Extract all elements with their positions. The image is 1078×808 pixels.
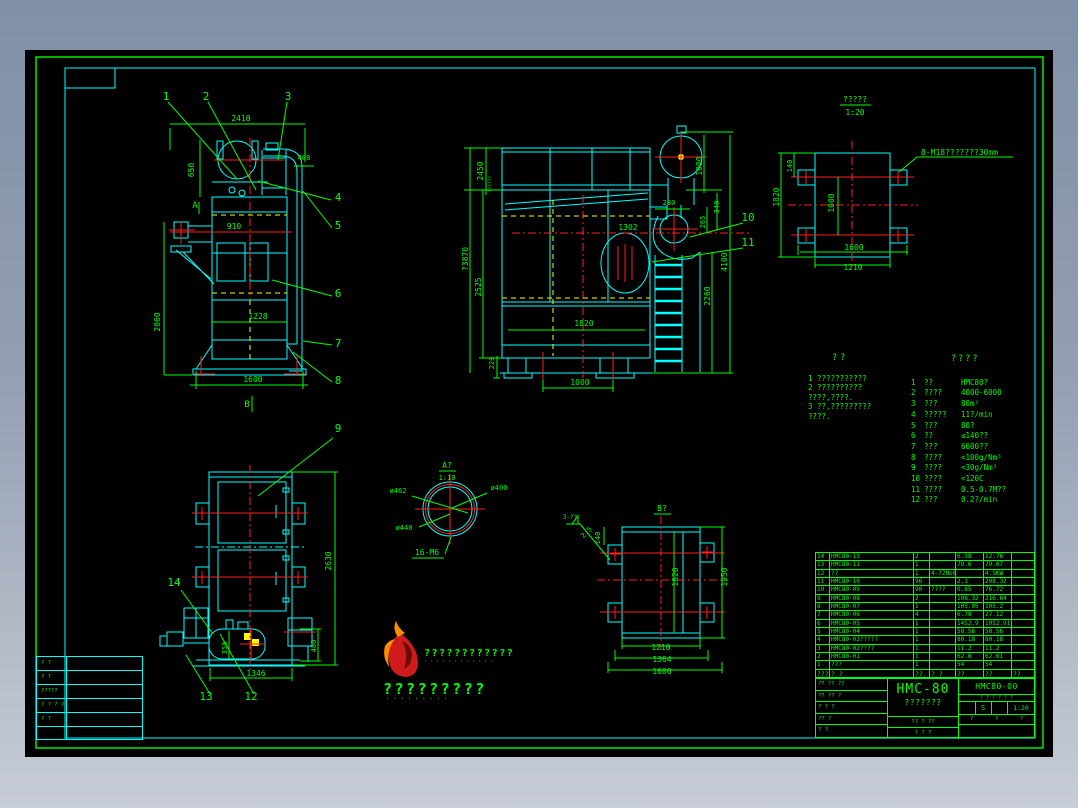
corner-row: ? ? (37, 713, 142, 727)
detail-a-scale: 1:10 (439, 474, 456, 482)
title-block-bottom-cell: ? (1020, 715, 1023, 724)
dim-vb-140: 140 (594, 532, 602, 545)
bom-cell: 6.38 (956, 553, 984, 560)
bom-cell: 108.32 (956, 595, 984, 602)
title-block-left-row: ? ? ? (816, 702, 887, 714)
dim-plan-1820: 1820 (772, 187, 781, 206)
bom-cell: 105.2 (984, 603, 1012, 610)
bom-cell (930, 553, 956, 560)
bom-cell: 12.76 (984, 553, 1012, 560)
bom-cell: 58.56 (956, 628, 984, 635)
bom-cell: 13 (816, 561, 830, 568)
dim-dia-440: ø440 (396, 524, 413, 532)
param-value: 6000?? (961, 442, 1061, 453)
dim-side-220: 220 (488, 357, 496, 370)
param-row: 5???80? (911, 421, 1061, 432)
callout-9: 9 (335, 422, 342, 435)
bom-cell: 1 (914, 570, 930, 577)
params-rows: 1??HMC80?2????4000-60003???80m²4?????11?… (911, 378, 1061, 506)
bom-cell: 54 (956, 661, 984, 668)
param-value: <100g/Nm³ (961, 453, 1061, 464)
param-value: 11?/min (961, 410, 1061, 421)
param-label: ??? (924, 399, 961, 410)
title-block-mid-row: ? ? ? (888, 728, 958, 739)
bom-row: 12??14-72No6C4.5KW (816, 570, 1034, 578)
dim-vb-1210: 1210 (651, 643, 670, 652)
param-no: 5 (911, 421, 924, 432)
param-label: ?? (924, 431, 961, 442)
callout-4: 4 (335, 191, 342, 204)
bom-row: 11HMC80-10962.1208.32 (816, 578, 1034, 586)
drawing-subtitle: ??????? (888, 698, 958, 707)
callout-12: 12 (244, 690, 257, 703)
param-no: 1 (911, 378, 924, 389)
side-elevation-view: 10 11 2450 ?????? ?3870 2525 220 1000 13… (461, 126, 755, 392)
bom-cell: 1 (914, 661, 930, 668)
corner-row: ? ? (37, 671, 142, 685)
view-b: B? 3-?? 2.5 140 1820 1950 1210 1364 1600 (563, 504, 729, 676)
dim-side-note: ?????? (488, 176, 494, 193)
bom-cell (930, 620, 956, 627)
param-label: ???? (924, 453, 961, 464)
plan-title: ????? (843, 95, 867, 104)
tank-indicator-2 (252, 639, 259, 646)
callout-3: 3 (285, 90, 292, 103)
bom-cell: 62.61 (984, 653, 1012, 660)
bom-cell (1012, 603, 1034, 610)
param-value: 80? (961, 421, 1061, 432)
bom-cell: HMC80-06 (830, 611, 914, 618)
bom-cell (930, 636, 956, 643)
bom-row: 13HMC80-11179.679.67 (816, 561, 1034, 569)
corner-row (37, 727, 142, 741)
note-line: ????. (808, 412, 916, 422)
dim-side-2260: 2260 (703, 286, 712, 305)
bom-cell: 1 (914, 561, 930, 568)
callout-11: 11 (741, 236, 754, 249)
dim-front-1228: 1228 (248, 312, 267, 321)
bom-cell: 54 (984, 661, 1012, 668)
param-value: <120C (961, 474, 1061, 485)
param-value: 80m² (961, 399, 1061, 410)
bom-cell: 6 (816, 620, 830, 627)
bom-row: 4HMC80-03?????180.1880.18 (816, 636, 1034, 644)
dim-front-2060: 2060 (153, 312, 162, 331)
corner-revision-block: ? ?? ??????? ? ? ?? ? (36, 656, 143, 740)
param-no: 4 (911, 410, 924, 421)
drawing-canvas[interactable]: 1 2 3 4 5 6 7 8 2410 650 408 910 2060 12… (25, 50, 1053, 757)
param-no: 8 (911, 453, 924, 464)
title-block-model-cell: HMC-80 ??????? (888, 679, 959, 717)
bom-cell (930, 561, 956, 568)
bom-cell: HMC80-07 (830, 603, 914, 610)
param-row: 1??HMC80? (911, 378, 1061, 389)
dim-dia-400: ø400 (491, 484, 508, 492)
bom-row: 9HMC80-082108.32216.64 (816, 595, 1034, 603)
bom-cell: 9 (816, 595, 830, 602)
bom-cell: ?? (830, 570, 914, 577)
bom-cell (1012, 570, 1034, 577)
title-block-left-row: ?? ? (816, 714, 887, 726)
drawing-scale: 1:20 (1008, 702, 1034, 714)
bom-cell: 14 (816, 553, 830, 560)
weld-note: 3-?? (563, 514, 578, 521)
params-title: ???? (911, 354, 1061, 365)
bom-cell: HMC80-03????? (830, 636, 914, 643)
bom-cell: 2.1 (956, 578, 984, 585)
bom-row: 6HMC80-0511452.91952.91 (816, 620, 1034, 628)
bom-row: 2HMC80-01162.662.61 (816, 653, 1034, 661)
bom-cell: 4.5KW (984, 570, 1012, 577)
dim-side-280: 280 (663, 199, 676, 207)
callout-6: 6 (335, 287, 342, 300)
bom-cell (1012, 628, 1034, 635)
logo-text-small: ???????????? (424, 648, 514, 659)
corner-row: ????? (37, 685, 142, 699)
bom-cell: HMC80-09 (830, 586, 914, 593)
bom-cell: 2 (816, 653, 830, 660)
bom-cell: ???? (930, 586, 956, 593)
param-row: 12???0.2?/min (911, 495, 1061, 506)
param-label: ?? (924, 378, 961, 389)
param-value: <30g/Nm³ (961, 463, 1061, 474)
bom-cell (1012, 620, 1034, 627)
bom-cell: 27.12 (984, 611, 1012, 618)
bom-cell: 80.18 (984, 636, 1012, 643)
param-label: ??? (924, 421, 961, 432)
note-line: 3 ??,????????? (808, 402, 916, 412)
note-line: 2 ?????????? (808, 383, 916, 393)
bom-row: 8HMC80-071105.05105.2 (816, 603, 1034, 611)
bom-cell: 216.64 (984, 595, 1012, 602)
dim-side-265: 265 (699, 216, 707, 229)
app-background: 1 2 3 4 5 6 7 8 2410 650 408 910 2060 12… (0, 0, 1078, 808)
dim-side-1000b: 1000 (570, 378, 589, 387)
bom-cell: 3 (816, 645, 830, 652)
bom-cell (930, 653, 956, 660)
param-row: 3???80m² (911, 399, 1061, 410)
corner-row: ? ? (37, 657, 142, 671)
title-block-marks: ? ? ? ? ? ? (959, 695, 1034, 702)
bom-cell: 62.6 (956, 653, 984, 660)
bom-cell: HMC80-01 (830, 653, 914, 660)
param-row: 2????4000-6000 (911, 388, 1061, 399)
model-number: HMC-80 (888, 681, 958, 698)
sheet-code: S (976, 702, 992, 714)
bom-cell: 1952.91 (984, 620, 1012, 627)
bom-cell (1012, 578, 1034, 585)
dim-side-1302: 1302 (618, 223, 637, 232)
bom-cell (930, 611, 956, 618)
drawing-number: HMC80-00 (959, 679, 1034, 695)
bom-cell (1012, 661, 1034, 668)
frame-corner-tab (65, 68, 115, 88)
callout-13: 13 (199, 690, 212, 703)
bom-cell (930, 578, 956, 585)
dim-vb-1364: 1364 (652, 655, 671, 664)
param-label: ???? (924, 388, 961, 399)
dim-plan-1210: 1210 (843, 263, 862, 272)
bom-cell: HMC80-02???? (830, 645, 914, 652)
dim-plan-140: 140 (786, 160, 794, 173)
param-label: ??? (924, 495, 961, 506)
dim-vb-1600: 1600 (652, 667, 671, 676)
param-no: 12 (911, 495, 924, 506)
bom-cell (1012, 553, 1034, 560)
dim-side-2525: 2525 (474, 277, 483, 296)
bom-cell: 1 (816, 661, 830, 668)
bom-cell: 105.05 (956, 603, 984, 610)
dim-plan-1000: 1000 (827, 193, 836, 212)
dim-side-1820: 1820 (574, 319, 593, 328)
param-row: 7???6000?? (911, 442, 1061, 453)
param-row: 11????0.5-0.7M?? (911, 485, 1061, 496)
bom-cell: 1452.9 (956, 620, 984, 627)
callout-8: 8 (335, 374, 342, 387)
dim-bolts-16m6: 16-M6 (415, 548, 439, 557)
dim-side-4100: 4100 (720, 252, 729, 271)
bom-cell: 1 (914, 653, 930, 660)
bom-cell (1012, 561, 1034, 568)
title-block-mid-row: ?? ? ?? (888, 717, 958, 728)
title-block: ?? ?? ???? ?? ?? ? ??? ?? ? HMC-80 ?????… (815, 678, 1035, 738)
bom-cell: HMC80-04 (830, 628, 914, 635)
param-row: 9????<30g/Nm³ (911, 463, 1061, 474)
callout-10: 10 (741, 211, 754, 224)
section-label-b: B (244, 400, 249, 410)
bom-table: 14HMC80-1326.3812.7613HMC80-11179.679.67… (815, 552, 1035, 678)
title-block-right: HMC80-00 ? ? ? ? ? ? S 1:20 ??? (959, 679, 1034, 737)
bom-cell (930, 645, 956, 652)
dim-side-2450: 2450 (476, 161, 485, 180)
bom-cell: 12 (816, 570, 830, 577)
dim-vb-1950: 1950 (720, 567, 729, 586)
bom-cell (1012, 636, 1034, 643)
bom-cell: 2 (914, 553, 930, 560)
bom-cell: 90 (914, 586, 930, 593)
dim-vb-1820: 1820 (671, 567, 680, 586)
dim-front-top: 2410 (231, 114, 250, 123)
param-value: HMC80? (961, 378, 1061, 389)
param-no: 6 (911, 431, 924, 442)
bom-cell: 6.78 (956, 611, 984, 618)
bom-cell: 79.67 (984, 561, 1012, 568)
view-b-title: B? (657, 504, 667, 513)
bom-cell (930, 661, 956, 668)
param-row: 10????<120C (911, 474, 1061, 485)
bom-cell (1012, 586, 1034, 593)
callout-5: 5 (335, 219, 342, 232)
bom-cell: 96 (914, 578, 930, 585)
bom-cell: 4 (914, 611, 930, 618)
bom-cell: 76.72 (984, 586, 1012, 593)
param-value: 0.2?/min (961, 495, 1061, 506)
title-block-bottom-cell: ? (995, 715, 998, 724)
bom-cell: HMC80-10 (830, 578, 914, 585)
company-logo: ???????????? ' ' ' ' ' ' ' ' ' ' ' ' ???… (383, 621, 514, 704)
bom-row: 14HMC80-1326.3812.76 (816, 553, 1034, 561)
param-no: 2 (911, 388, 924, 399)
dim-side-340: 340 (713, 201, 721, 214)
title-block-cells: S 1:20 (959, 702, 1034, 715)
bom-cell: 8 (816, 603, 830, 610)
corner-row: ? ? ? ? (37, 699, 142, 713)
bom-cell: HMC80-13 (830, 553, 914, 560)
detail-a-title: A? (442, 461, 452, 470)
dim-plan-1600: 1600 (844, 243, 863, 252)
bom-cell (930, 603, 956, 610)
param-label: ???? (924, 474, 961, 485)
bom-cell: 58.56 (984, 628, 1012, 635)
tb-cell-empty1 (959, 702, 976, 714)
bom-cell: ??? (830, 661, 914, 668)
title-block-mid-rows: ?? ? ??? ? ? (888, 717, 959, 739)
bom-cell: 1 (914, 628, 930, 635)
section-label-a: A (192, 201, 198, 211)
title-block-left-row: ? ? (816, 725, 887, 737)
bom-row: 5HMC80-04158.5658.56 (816, 628, 1034, 636)
bom-row: 3HMC80-02????111.211.2 (816, 645, 1034, 653)
callout-7: 7 (335, 337, 342, 350)
dim-rear-480: 480 (310, 640, 318, 653)
bom-cell: 2 (914, 595, 930, 602)
param-no: 9 (911, 463, 924, 474)
param-row: 6??≤140?? (911, 431, 1061, 442)
dim-front-1600: 1600 (243, 375, 262, 384)
bom-cell: 4-72No6C (930, 570, 956, 577)
title-block-left-row: ?? ?? ? (816, 691, 887, 703)
dim-front-408: 408 (298, 154, 311, 162)
title-block-bottom-cell: ? (970, 715, 973, 724)
bom-row: 10HMC80-0990????0.8576.72 (816, 586, 1034, 594)
param-row: 8????<100g/Nm³ (911, 453, 1061, 464)
bom-cell: 11.2 (956, 645, 984, 652)
title-block-revision-grid: ?? ?? ???? ?? ?? ? ??? ?? ? (816, 679, 888, 737)
bom-cell (930, 628, 956, 635)
param-no: 7 (911, 442, 924, 453)
dim-dia-462: ø462 (390, 487, 407, 495)
tb-cell-empty2 (992, 702, 1009, 714)
base-plan-view: ????? 1:20 8-M18???????30mm 140 1820 100… (772, 95, 1013, 272)
bom-cell (1012, 595, 1034, 602)
bom-cell: 80.18 (956, 636, 984, 643)
bom-cell (956, 570, 984, 577)
parameter-table: ???? 1??HMC80?2????4000-60003???80m²4???… (911, 354, 1061, 506)
notes-lines: 1 ???????????2 ?????????? ????,????.3 ??… (808, 374, 916, 422)
bom-cell: 1 (914, 620, 930, 627)
dim-front-650: 650 (187, 163, 196, 178)
dim-rear-350: 350 (221, 642, 229, 655)
logo-text-small-sub: ' ' ' ' ' ' ' ' ' ' ' ' (424, 660, 493, 666)
bom-cell: 79.6 (956, 561, 984, 568)
bom-cell: 5 (816, 628, 830, 635)
dim-front-910: 910 (227, 222, 242, 231)
logo-text-large-sub: ' ' ' ' ' ' ' ' ' (386, 697, 447, 704)
notes-title: ?? (808, 354, 916, 364)
plan-scale: 1:20 (845, 108, 864, 117)
bom-cell (1012, 645, 1034, 652)
dim-rear-1346: 1346 (246, 669, 265, 678)
param-label: ???? (924, 485, 961, 496)
callout-14: 14 (167, 576, 181, 589)
bom-cell: 11 (816, 578, 830, 585)
bom-cell: 1 (914, 603, 930, 610)
bom-cell: 11.2 (984, 645, 1012, 652)
dim-side-1000r: 1000 (695, 156, 704, 175)
note-line: ????,????. (808, 393, 916, 403)
bom-cell: HMC80-11 (830, 561, 914, 568)
technical-notes: ?? 1 ???????????2 ?????????? ????,????.3… (808, 354, 916, 422)
callout-1: 1 (163, 90, 170, 103)
bom-cell: 7 (816, 611, 830, 618)
detail-a-view: A? 1:10 ø462 ø400 ø440 16-M6 (390, 461, 508, 558)
param-no: 11 (911, 485, 924, 496)
param-no: 10 (911, 474, 924, 485)
param-value: ≤140?? (961, 431, 1061, 442)
param-value: 0.5-0.7M?? (961, 485, 1061, 496)
bom-row: 1???15454 (816, 661, 1034, 669)
bom-cell (1012, 653, 1034, 660)
dim-rear-2630: 2630 (324, 551, 333, 570)
logo-text-large: ????????? (383, 680, 487, 698)
title-block-left-row: ?? ?? ?? (816, 679, 887, 691)
bom-cell: 208.32 (984, 578, 1012, 585)
param-value: 4000-6000 (961, 388, 1061, 399)
callout-2: 2 (203, 90, 210, 103)
bom-cell: HMC80-05 (830, 620, 914, 627)
note-line: 1 ??????????? (808, 374, 916, 384)
bom-cell: 4 (816, 636, 830, 643)
plan-bolt-note: 8-M18???????30mm (921, 148, 998, 157)
bom-cell (930, 595, 956, 602)
bom-cell: 1 (914, 636, 930, 643)
title-block-bottom-row: ??? (959, 715, 1034, 725)
bom-cell: 10 (816, 586, 830, 593)
param-row: 4?????11?/min (911, 410, 1061, 421)
bom-cell: 1 (914, 645, 930, 652)
param-label: ???? (924, 463, 961, 474)
param-no: 3 (911, 399, 924, 410)
front-elevation-view: 1 2 3 4 5 6 7 8 2410 650 408 910 2060 12… (153, 90, 342, 412)
bom-cell: 0.85 (956, 586, 984, 593)
dim-side-3870: ?3870 (461, 247, 470, 271)
param-label: ????? (924, 410, 961, 421)
rear-view: 9 12 13 14 2630 1346 480 350 (160, 422, 341, 703)
bom-row: 7HMC80-0646.7827.12 (816, 611, 1034, 619)
param-label: ??? (924, 442, 961, 453)
bom-cell (1012, 611, 1034, 618)
bom-cell: HMC80-08 (830, 595, 914, 602)
